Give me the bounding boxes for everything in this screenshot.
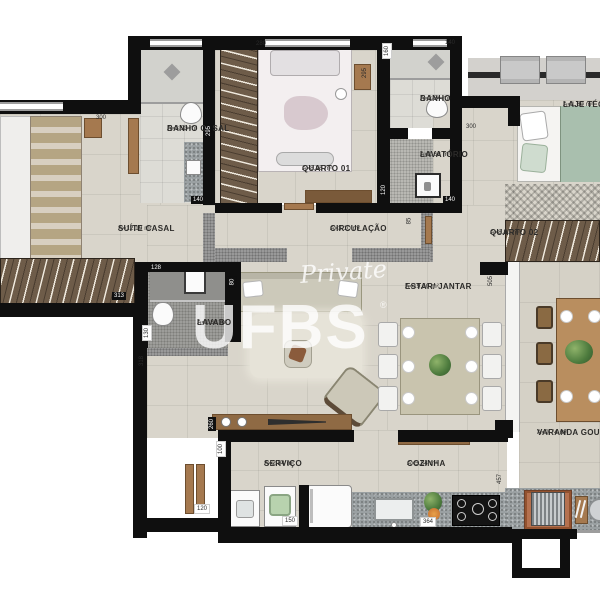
dim-label: 295 [205, 124, 213, 138]
vase [221, 417, 231, 427]
dim-label: 160 [382, 43, 392, 59]
dim-label: 128 [149, 264, 163, 272]
dim-label: 505 [488, 276, 494, 286]
sliding-glass-door [505, 262, 520, 432]
quarto-02-pillow [520, 143, 549, 174]
grill-grate [531, 492, 565, 526]
wall-segment [0, 303, 135, 317]
dim-label: 457 [497, 474, 503, 484]
banho-casal-toilet [180, 102, 202, 124]
plate [465, 392, 478, 405]
dim-label: 100 [216, 441, 226, 457]
dining-chair [482, 354, 502, 379]
burner [488, 499, 497, 508]
wall-segment [508, 96, 520, 126]
suite-nightstand [84, 118, 102, 138]
varanda-chair [536, 380, 553, 403]
wall-segment [450, 36, 462, 213]
dim-label: 318 [139, 356, 145, 366]
quarto-02-door [425, 216, 432, 244]
quarto-01-pillow [270, 50, 340, 76]
burner [488, 512, 497, 521]
dim-label: 130 [142, 325, 152, 341]
plate [588, 390, 600, 403]
plate [588, 310, 600, 323]
dim-label: 85 [406, 218, 412, 225]
dim-label: 80 [228, 277, 236, 288]
wall-segment-concrete [215, 248, 287, 262]
wall-segment [390, 128, 408, 139]
ac-condenser [546, 56, 586, 84]
dim-label: 300 [466, 124, 476, 130]
dim-label: 300 [96, 115, 106, 121]
plate [465, 326, 478, 339]
varanda-chair [536, 342, 553, 365]
dim-label: 140 [445, 40, 455, 46]
banho-casal-door [128, 118, 139, 174]
plate [402, 360, 415, 373]
dining-chair [378, 322, 398, 347]
shaft-void [522, 539, 560, 568]
dim-label: 313 [112, 292, 126, 300]
plate [560, 390, 573, 403]
quarto-01-dresser [305, 190, 372, 203]
plate [402, 392, 415, 405]
quarto-02-wardrobe [505, 220, 600, 262]
floor-plan: 300 280 295 140 160 140 295 300 120 140 … [0, 0, 600, 600]
wall-segment [377, 203, 462, 213]
window [150, 39, 202, 47]
quarto-02-pillow [519, 110, 549, 141]
table-plant [429, 354, 451, 376]
dim-label: 364 [420, 517, 436, 527]
dining-chair [378, 386, 398, 411]
dim-label: 120 [380, 183, 388, 197]
dim-label: 295 [362, 68, 368, 78]
wall-segment [495, 420, 513, 438]
quarto-01-door [284, 203, 314, 210]
vase [237, 417, 247, 427]
wall-segment [316, 203, 380, 213]
burner [472, 503, 484, 515]
lavabo-sink [184, 270, 206, 294]
window [0, 102, 63, 111]
kitchen-sink [374, 498, 414, 521]
tanque-basin [236, 500, 254, 518]
dim-label: 140 [443, 196, 457, 204]
varanda-chair [536, 306, 553, 329]
dim-label: 260 [208, 417, 216, 431]
watermark-registered-icon: ® [380, 300, 387, 310]
wall-segment [563, 529, 577, 539]
wall-segment-concrete [203, 213, 215, 262]
plate [402, 326, 415, 339]
quarto-01-blanket-detail [284, 96, 328, 130]
lavabo-toilet [152, 302, 174, 326]
burner [457, 499, 466, 508]
washer-lid [269, 494, 291, 516]
window [413, 39, 447, 47]
wall-segment [215, 203, 282, 213]
quarto-02-blanket [560, 106, 600, 182]
dining-chair [482, 386, 502, 411]
dim-label: 140 [191, 196, 205, 204]
dining-chair [378, 354, 398, 379]
dim-label: 280 [256, 41, 266, 47]
suite-bed-blanket [30, 116, 82, 264]
dim-label: 120 [194, 504, 210, 514]
ac-condenser [500, 56, 540, 84]
quarto-01-lamp-icon [335, 88, 347, 100]
wall-segment [299, 485, 309, 527]
hall-door-leaf [185, 464, 194, 514]
wall-segment [218, 527, 512, 543]
fridge-handle [310, 489, 313, 523]
dining-chair [482, 322, 502, 347]
plate [560, 310, 573, 323]
plate [465, 360, 478, 373]
dim-label: 150 [282, 516, 298, 526]
window [265, 39, 350, 47]
banho-casal-sink [186, 160, 201, 175]
wall-segment [398, 430, 508, 442]
wall-segment [231, 430, 354, 442]
varanda-plant [565, 340, 593, 364]
burner [457, 512, 466, 521]
watermark-brand: UFBS [192, 292, 369, 363]
lavatorio-basin [424, 182, 431, 191]
wall-segment [480, 262, 508, 275]
